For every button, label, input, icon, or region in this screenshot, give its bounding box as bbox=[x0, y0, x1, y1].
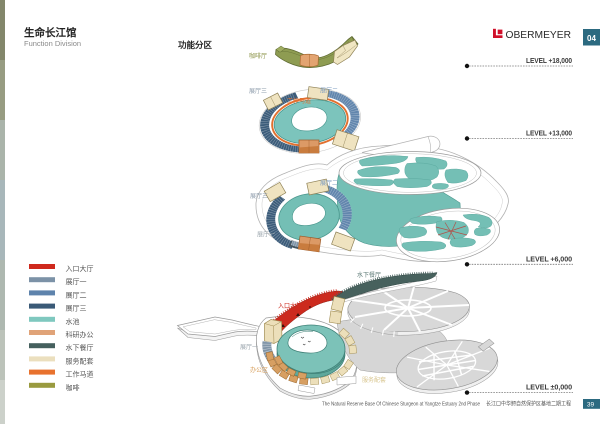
svg-text:科研办公: 科研办公 bbox=[66, 330, 94, 339]
svg-text:展厅三: 展厅三 bbox=[250, 193, 268, 200]
svg-text:水下餐厅: 水下餐厅 bbox=[357, 271, 381, 279]
svg-text:水池: 水池 bbox=[66, 317, 80, 326]
svg-text:工作马道: 工作马道 bbox=[66, 370, 94, 379]
svg-text:工作马道: 工作马道 bbox=[287, 97, 311, 105]
svg-text:OBERMEYER: OBERMEYER bbox=[506, 29, 572, 41]
svg-text:生命长江馆: 生命长江馆 bbox=[24, 26, 77, 39]
svg-text:水下餐厅: 水下餐厅 bbox=[66, 343, 94, 352]
svg-text:入口大厅: 入口大厅 bbox=[278, 302, 302, 310]
svg-text:LEVEL +13,000: LEVEL +13,000 bbox=[526, 129, 572, 138]
svg-text:展厅二: 展厅二 bbox=[66, 291, 87, 299]
svg-text:展厅一: 展厅一 bbox=[66, 278, 87, 286]
svg-text:咖啡: 咖啡 bbox=[66, 383, 80, 392]
svg-text:展厅三: 展厅三 bbox=[249, 88, 267, 95]
svg-text:Function Division: Function Division bbox=[24, 39, 81, 48]
svg-text:LEVEL +6,000: LEVEL +6,000 bbox=[526, 254, 572, 263]
svg-text:服务配套: 服务配套 bbox=[66, 356, 94, 365]
svg-text:展厅二: 展厅二 bbox=[320, 180, 338, 187]
svg-text:04: 04 bbox=[587, 34, 596, 43]
svg-text:功能分区: 功能分区 bbox=[178, 40, 213, 50]
svg-text:入口大厅: 入口大厅 bbox=[66, 264, 94, 273]
svg-text:展厅一: 展厅一 bbox=[240, 344, 258, 351]
svg-text:咖啡厅: 咖啡厅 bbox=[249, 52, 267, 60]
svg-text:展厅一: 展厅一 bbox=[257, 232, 275, 239]
svg-text:展厅二: 展厅二 bbox=[320, 88, 338, 95]
svg-text:LEVEL +18,000: LEVEL +18,000 bbox=[526, 56, 572, 65]
svg-text:展厅三: 展厅三 bbox=[66, 305, 87, 313]
svg-text:长江口中华鲟自然保护区基地二期工程: 长江口中华鲟自然保护区基地二期工程 bbox=[486, 400, 571, 408]
svg-text:39: 39 bbox=[587, 402, 595, 409]
svg-text:办公区: 办公区 bbox=[250, 366, 268, 374]
svg-text:LEVEL ±0,000: LEVEL ±0,000 bbox=[526, 383, 572, 392]
svg-text:The Natural Reserve Base Of Ch: The Natural Reserve Base Of Chinese Stur… bbox=[322, 402, 480, 408]
svg-text:服务配套: 服务配套 bbox=[362, 376, 386, 384]
